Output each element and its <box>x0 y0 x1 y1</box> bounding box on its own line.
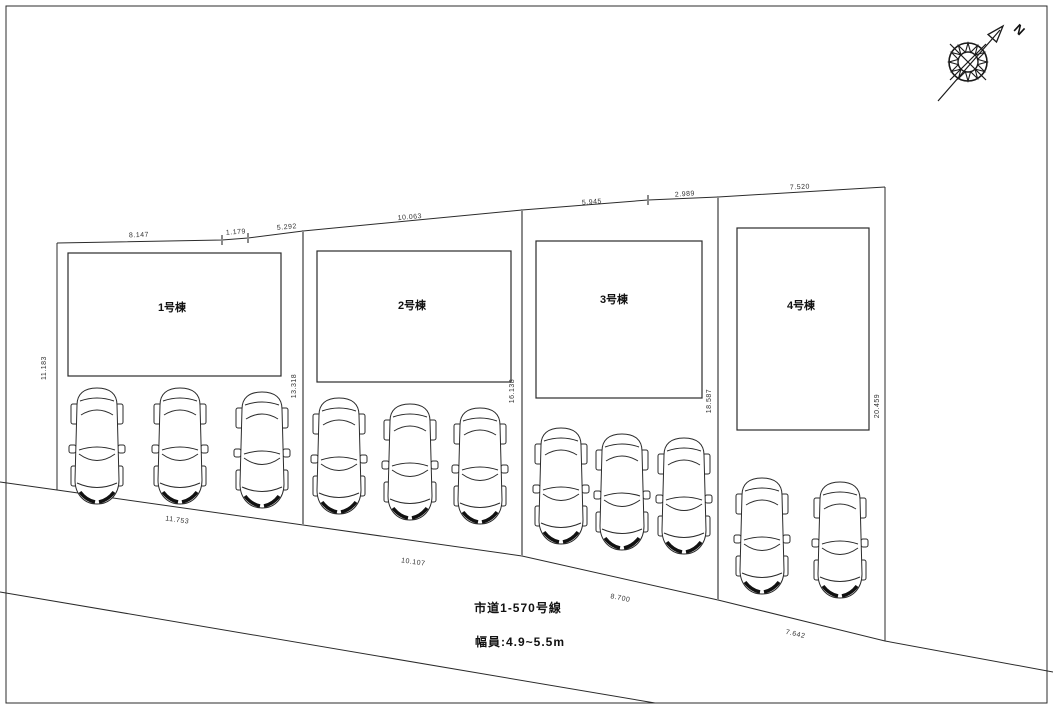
dim-top-5: 5.945 <box>582 198 602 206</box>
dim-bottom-2: 10.107 <box>401 557 426 567</box>
dim-divider-3: 18.587 <box>706 389 713 413</box>
dim-right: 20.459 <box>874 394 881 418</box>
dim-top-1: 8.147 <box>129 232 149 240</box>
building-1-label: 1号棟 <box>158 300 187 314</box>
dim-bottom-3: 8.700 <box>610 593 631 604</box>
dim-divider-1: 13.318 <box>291 374 298 398</box>
dim-top-3: 5.292 <box>277 223 298 232</box>
parking-lot-4 <box>734 478 868 598</box>
dim-left: 11.183 <box>41 356 48 380</box>
car <box>533 428 589 544</box>
road-name-label: 市道1-570号線 <box>474 600 562 615</box>
car <box>656 438 712 554</box>
site-plan: 1号棟 2号棟 3号棟 4号棟 8.147 1.179 5.292 10.063… <box>0 0 1053 709</box>
car <box>234 392 290 508</box>
dim-bottom-4: 7.642 <box>785 629 806 640</box>
car <box>734 478 790 594</box>
dim-top-7: 7.520 <box>790 183 810 191</box>
building-3: 3号棟 <box>536 241 702 398</box>
building-2-label: 2号棟 <box>398 298 427 312</box>
north-label: N <box>1011 21 1028 38</box>
building-1: 1号棟 <box>68 253 281 376</box>
parking-lot-1 <box>69 388 290 508</box>
dim-divider-2: 16.138 <box>509 379 516 403</box>
building-2: 2号棟 <box>317 251 511 382</box>
dim-top-6: 2.989 <box>675 190 695 198</box>
dim-top-4: 10.063 <box>397 213 422 222</box>
building-3-label: 3号棟 <box>600 292 629 306</box>
road-width-label: 幅員:4.9~5.5m <box>475 634 565 649</box>
car <box>311 398 367 514</box>
car <box>812 482 868 598</box>
car <box>152 388 208 504</box>
north-arrow-icon: N <box>938 21 1028 101</box>
car <box>594 434 650 550</box>
car <box>452 408 508 524</box>
car <box>382 404 438 520</box>
parking-lot-3 <box>533 428 712 554</box>
building-4: 4号棟 <box>737 228 869 430</box>
dim-bottom-1: 11.753 <box>165 515 190 525</box>
parking-lot-2 <box>311 398 508 524</box>
dim-top-2: 1.179 <box>226 228 246 236</box>
building-4-label: 4号棟 <box>787 298 816 312</box>
car <box>69 388 125 504</box>
